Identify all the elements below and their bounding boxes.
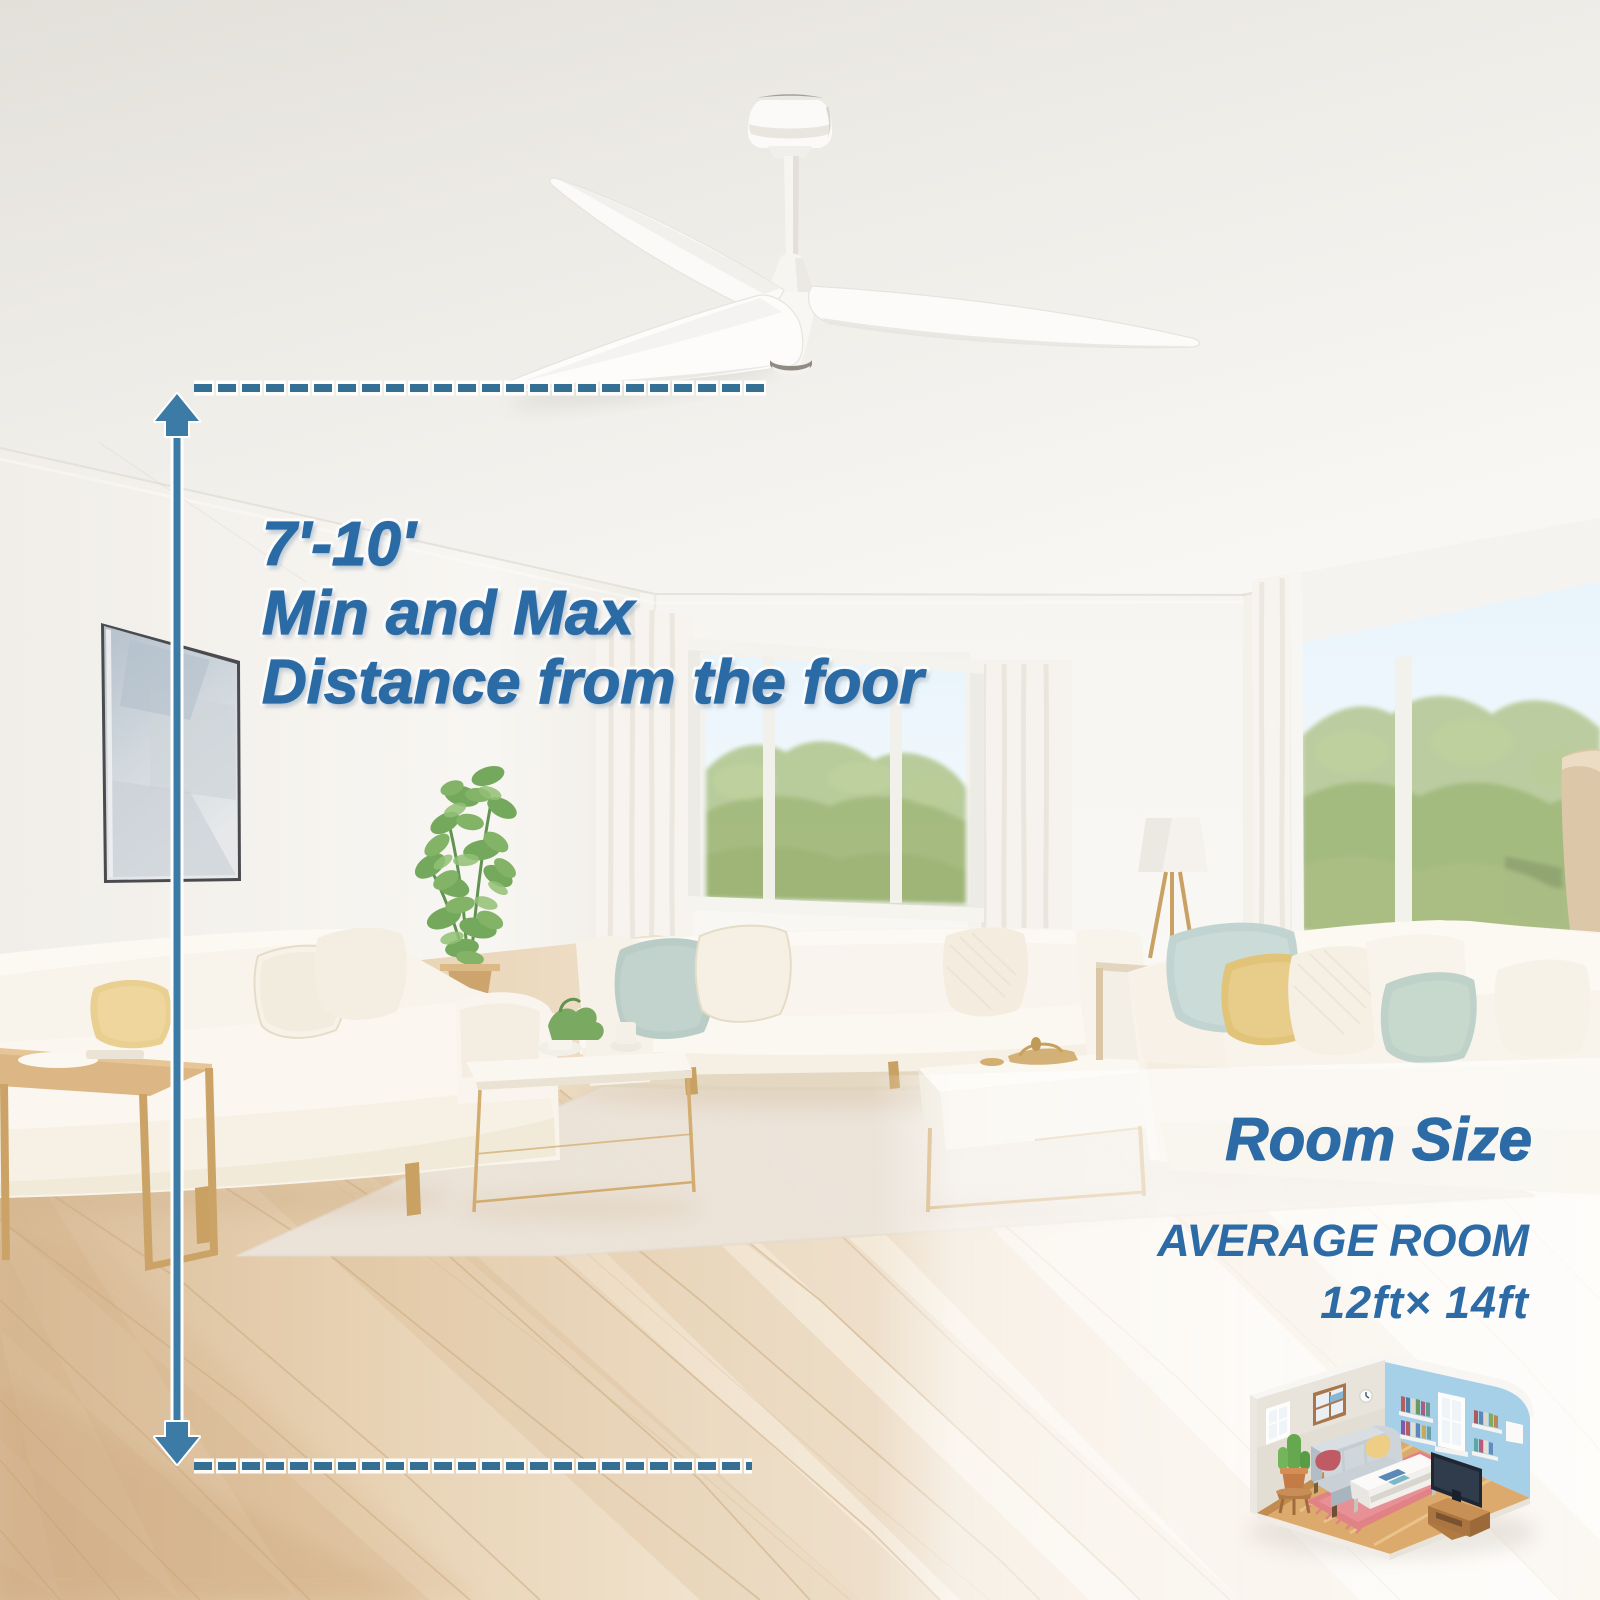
svg-text:Room Size: Room Size xyxy=(1225,1106,1532,1173)
svg-text:Min and Max: Min and Max xyxy=(262,579,637,648)
svg-text:7'-10': 7'-10' xyxy=(262,510,418,579)
svg-text:12ft× 14ft: 12ft× 14ft xyxy=(1320,1277,1530,1328)
svg-text:AVERAGE ROOM: AVERAGE ROOM xyxy=(1156,1215,1530,1266)
svg-text:Distance from the foor: Distance from the foor xyxy=(262,648,926,717)
